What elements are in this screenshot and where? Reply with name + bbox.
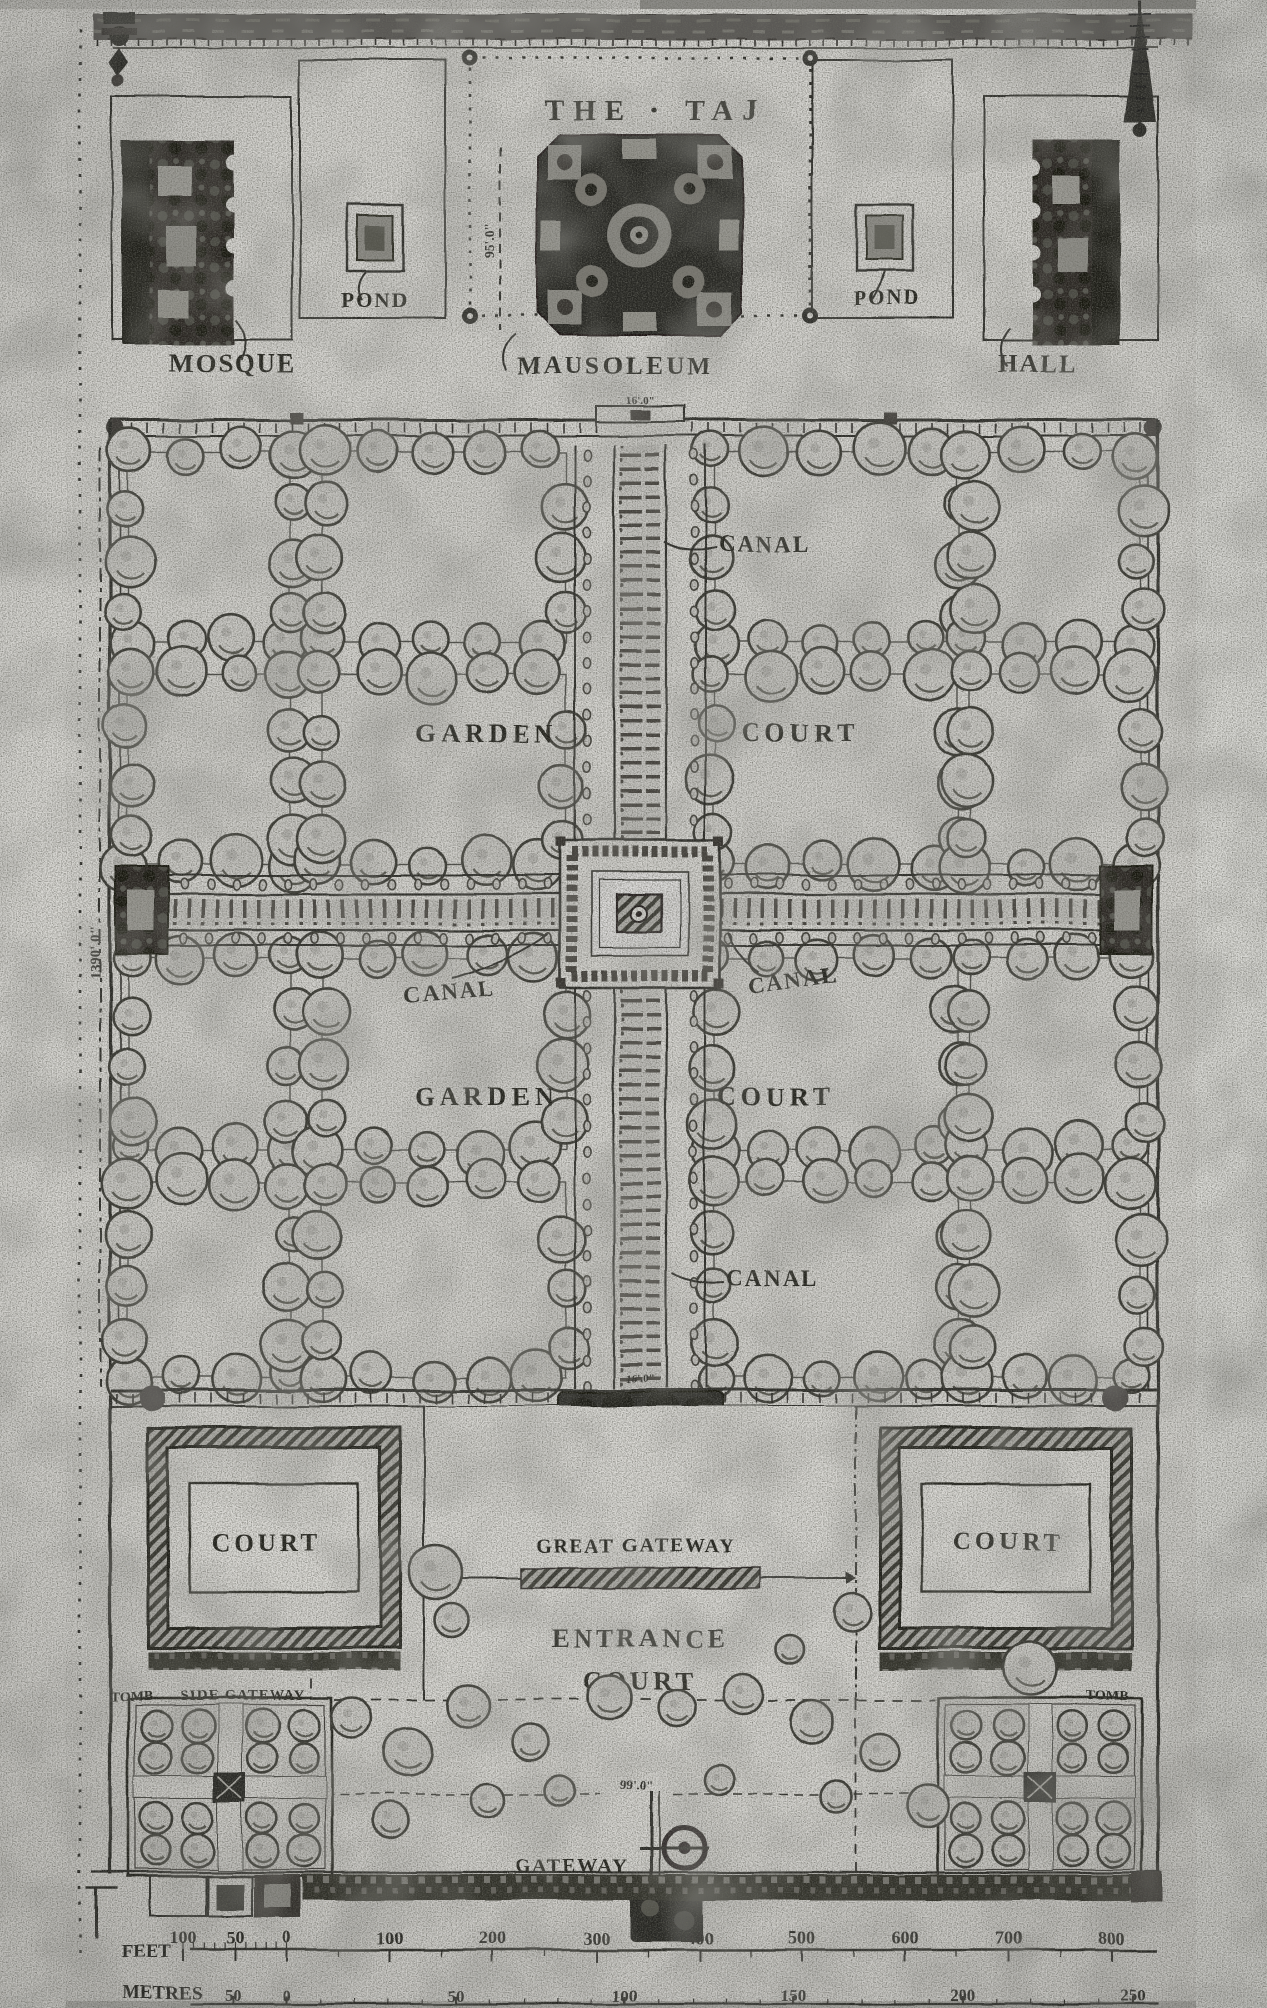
plan-canvas: THE · TAJ MAUSOLEUM MOSQUE HALL POND PON… xyxy=(0,0,1267,2008)
vignette xyxy=(0,0,1267,2008)
taj-plan-drawing: THE · TAJ MAUSOLEUM MOSQUE HALL POND PON… xyxy=(0,0,1267,2008)
